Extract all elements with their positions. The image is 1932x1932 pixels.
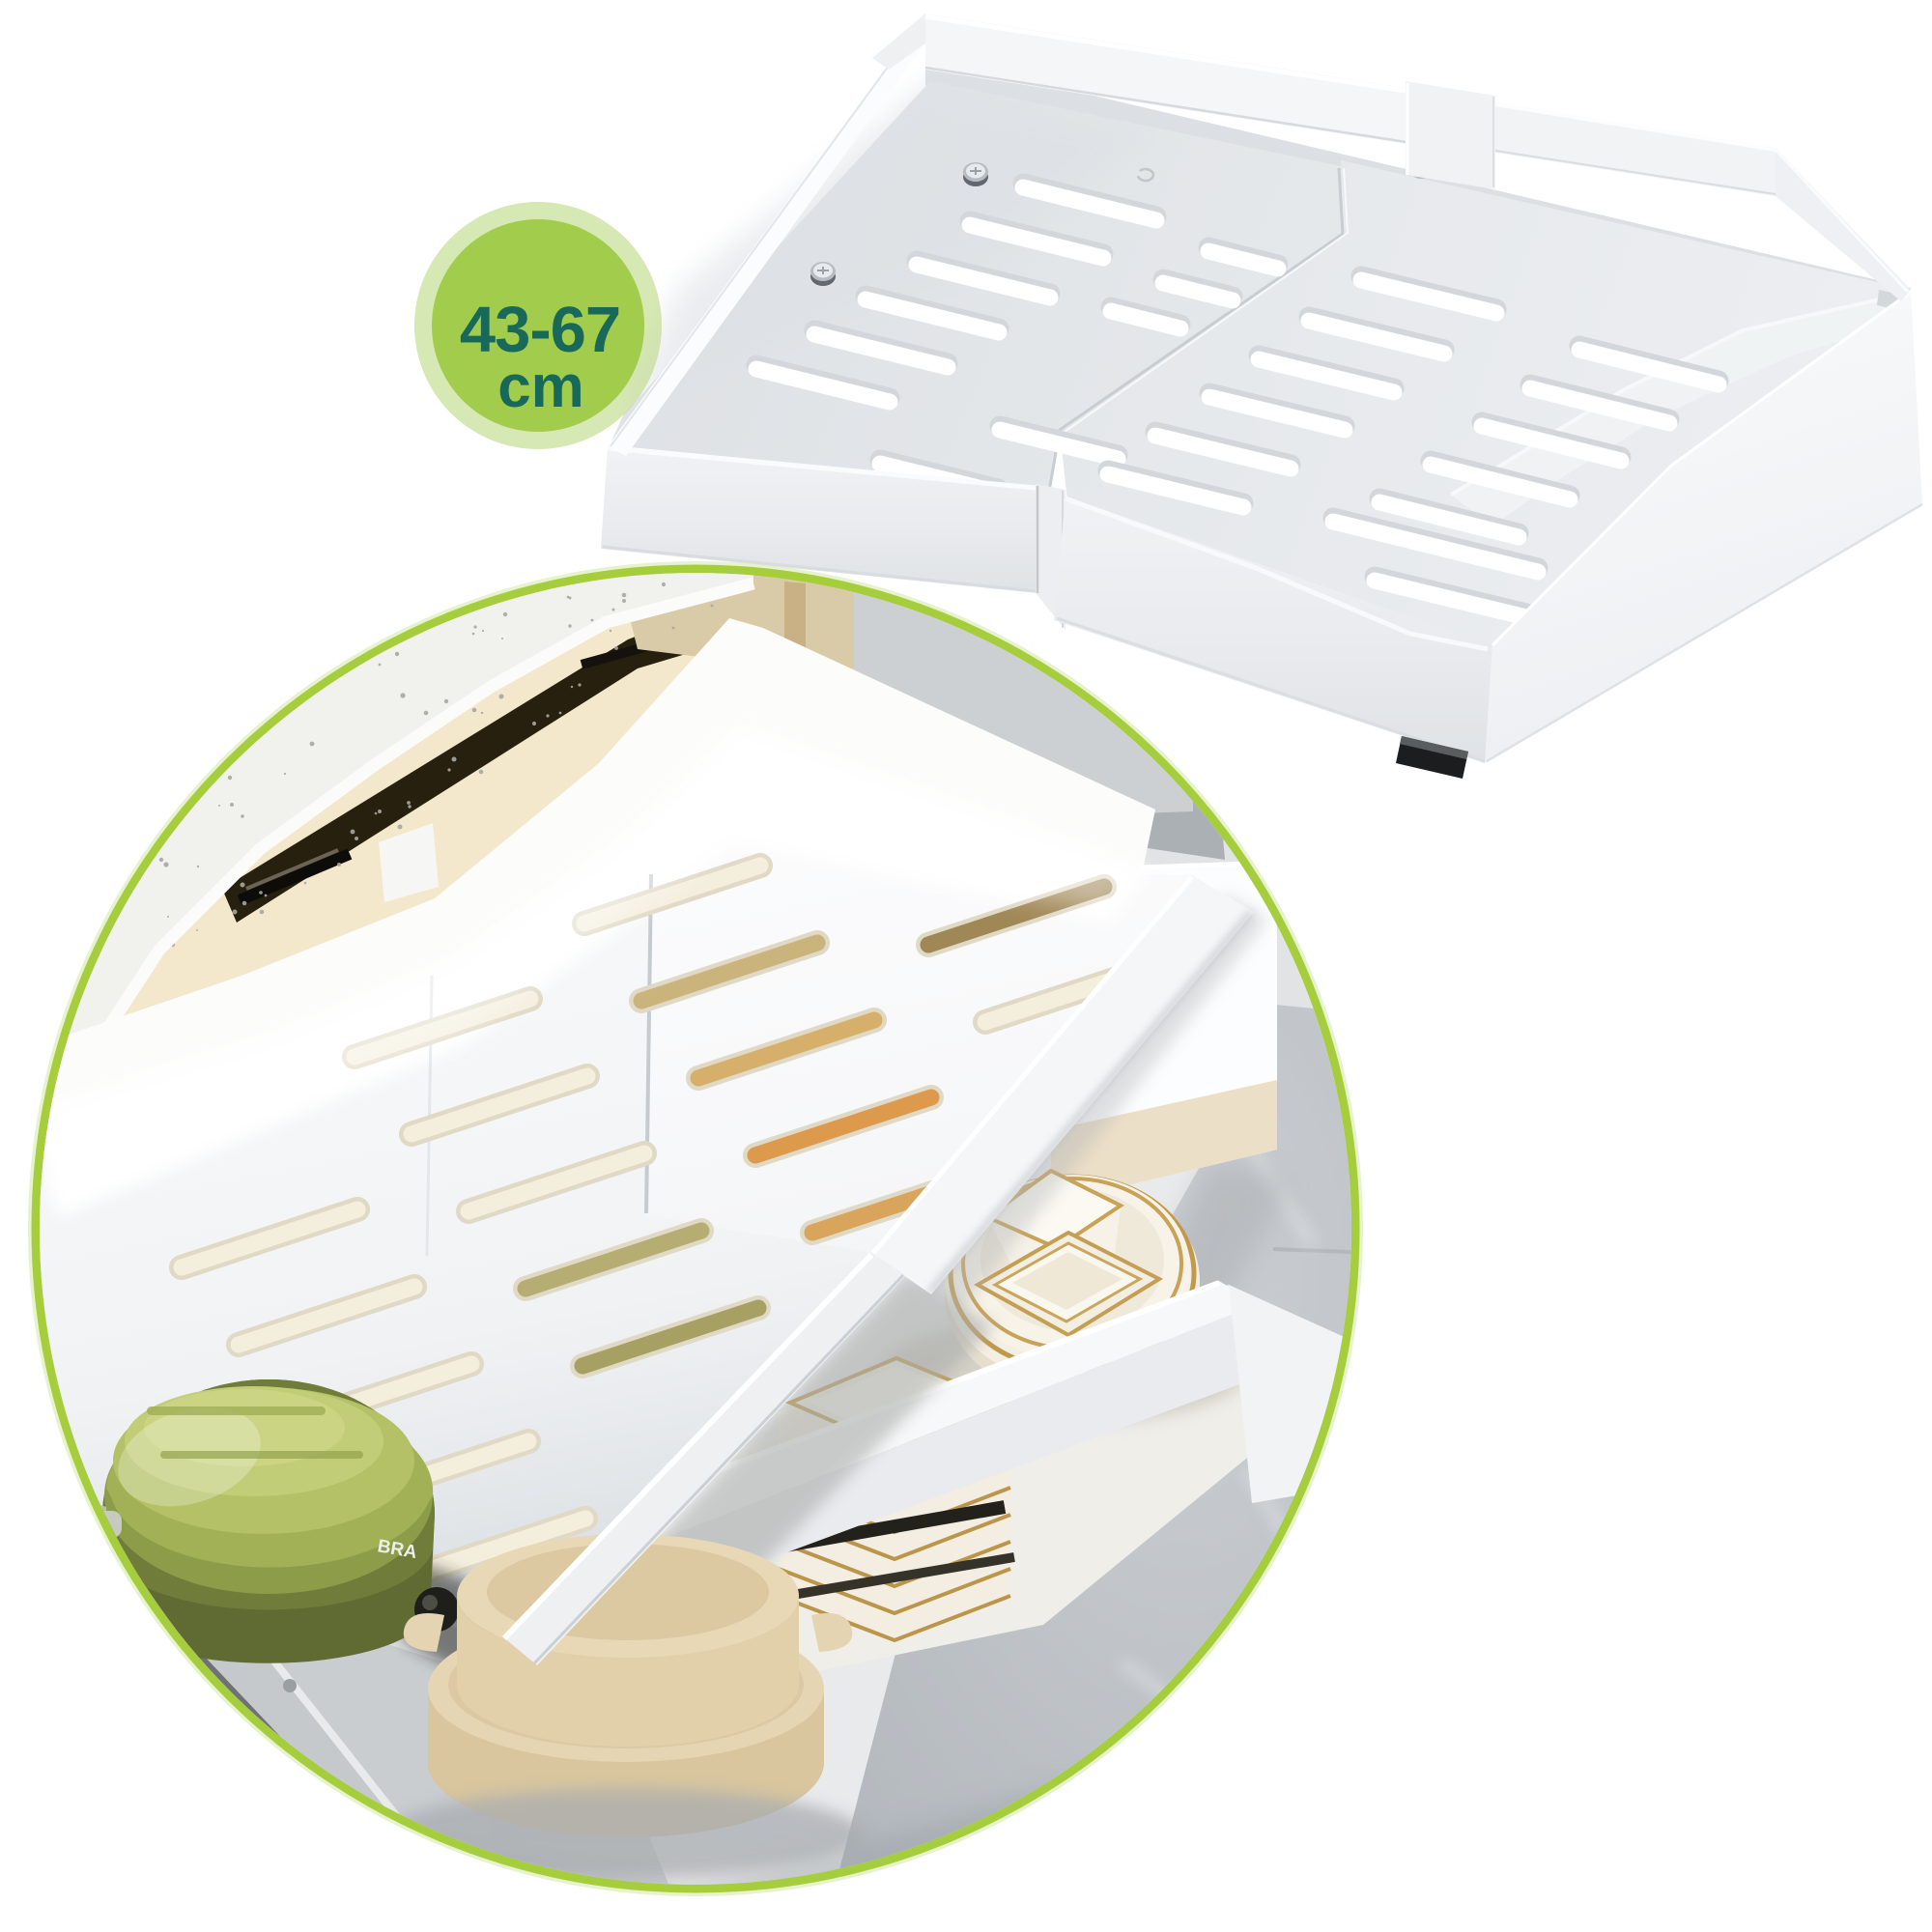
svg-text:cm: cm — [497, 354, 584, 420]
